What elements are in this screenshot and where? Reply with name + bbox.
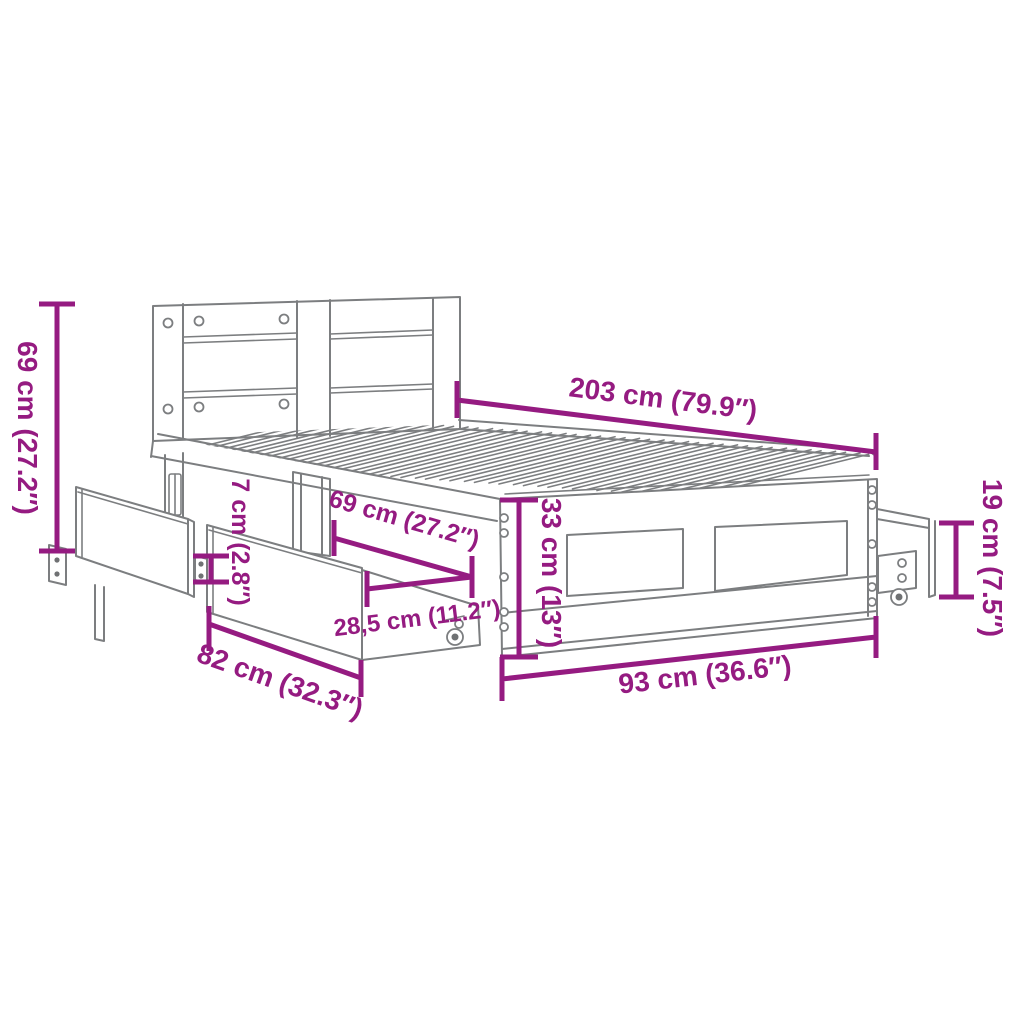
drawer-slide-leg: [95, 585, 104, 641]
dim-frame-height-label: 33 cm (13″): [536, 498, 567, 648]
dim-rail-gap-label: 7 cm (2.8″): [226, 478, 254, 605]
drawer-open-left: [76, 487, 194, 597]
drawer-front-outline-1: [567, 529, 683, 596]
dim-headboard-height: 69 cm (27.2″): [12, 304, 75, 551]
caster-wheel: [447, 629, 463, 645]
dim-footend-height-label: 19 cm (7.5″): [977, 479, 1008, 637]
caster-wheel: [891, 589, 907, 605]
dim-headboard-height-label: 69 cm (27.2″): [12, 341, 43, 515]
bed-dimension-diagram: 203 cm (79.9″) 69 cm (27.2″) 7 cm (2.8″)…: [0, 0, 1024, 1024]
footend-drawer: [877, 509, 935, 605]
diagram-canvas: 203 cm (79.9″) 69 cm (27.2″) 7 cm (2.8″)…: [0, 0, 1024, 1024]
dim-footend-height: 19 cm (7.5″): [939, 479, 1008, 637]
headboard: [153, 297, 460, 441]
